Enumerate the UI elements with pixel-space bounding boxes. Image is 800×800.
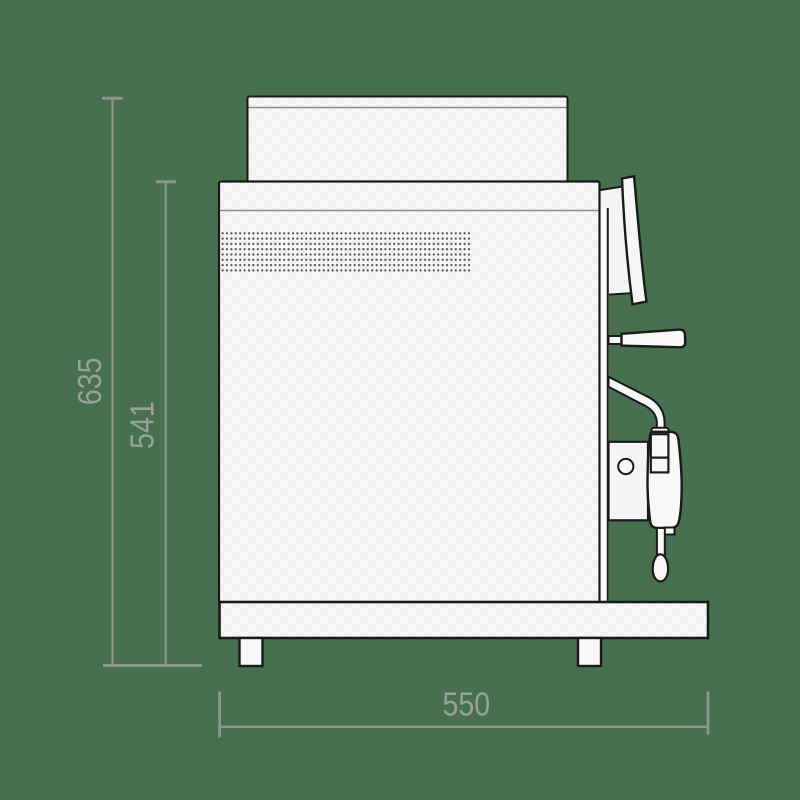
svg-text:635: 635 bbox=[71, 357, 109, 405]
svg-text:541: 541 bbox=[123, 401, 161, 449]
svg-text:550: 550 bbox=[442, 686, 490, 724]
